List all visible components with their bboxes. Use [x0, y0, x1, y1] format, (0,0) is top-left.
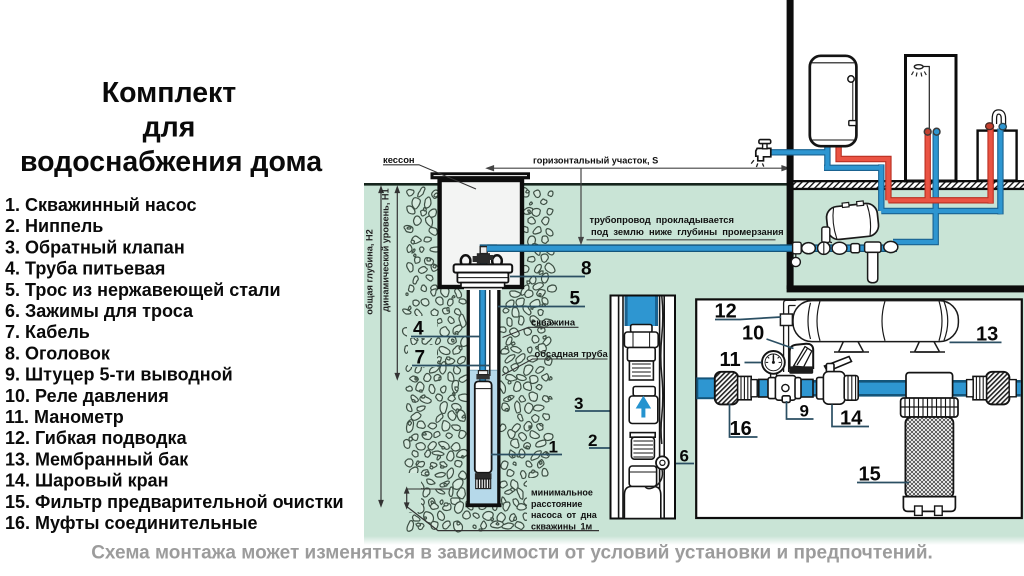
svg-text:2. Ниппель: 2. Ниппель — [5, 216, 103, 236]
svg-text:7: 7 — [415, 348, 426, 369]
svg-text:Комплект: Комплект — [102, 77, 237, 109]
svg-text:общая глубина, Н2: общая глубина, Н2 — [365, 229, 375, 314]
svg-text:9: 9 — [800, 402, 809, 421]
svg-text:16. Муфты соединительные: 16. Муфты соединительные — [5, 513, 258, 533]
svg-text:водоснабжения дома: водоснабжения дома — [20, 146, 323, 178]
svg-text:2: 2 — [588, 431, 597, 450]
svg-text:насоса от дна: насоса от дна — [531, 510, 598, 520]
svg-text:14. Шаровый кран: 14. Шаровый кран — [5, 471, 169, 491]
svg-text:4. Труба питьевая: 4. Труба питьевая — [5, 259, 165, 279]
svg-text:горизонтальный участок, S: горизонтальный участок, S — [533, 156, 658, 166]
svg-text:Схема монтажа может изменяться: Схема монтажа может изменяться в зависим… — [91, 543, 933, 564]
svg-text:12. Гибкая подводка: 12. Гибкая подводка — [5, 428, 188, 448]
svg-text:11. Манометр: 11. Манометр — [5, 407, 124, 427]
svg-text:5: 5 — [570, 289, 581, 310]
svg-text:1: 1 — [549, 438, 558, 457]
svg-text:10: 10 — [742, 323, 764, 345]
svg-text:15. Фильтр предварительной очи: 15. Фильтр предварительной очистки — [5, 492, 344, 512]
svg-text:7. Кабель: 7. Кабель — [5, 322, 90, 342]
svg-text:16: 16 — [730, 418, 752, 440]
svg-text:трубопровод прокладывается: трубопровод прокладывается — [590, 214, 734, 225]
svg-text:обсадная труба: обсадная труба — [535, 348, 609, 359]
svg-text:скважины 1м: скважины 1м — [531, 521, 592, 531]
svg-text:13. Мембранный бак: 13. Мембранный бак — [5, 449, 189, 469]
svg-text:12: 12 — [715, 301, 737, 323]
svg-text:6. Зажимы для троса: 6. Зажимы для троса — [5, 301, 194, 321]
svg-text:динамический уровень, Н1: динамический уровень, Н1 — [381, 188, 391, 311]
svg-text:скважина: скважина — [531, 317, 576, 328]
svg-text:13: 13 — [976, 324, 998, 346]
svg-text:для: для — [143, 112, 196, 144]
svg-text:минимальное: минимальное — [531, 488, 593, 498]
svg-text:8: 8 — [581, 259, 592, 280]
svg-text:15: 15 — [859, 464, 881, 486]
svg-text:расстояние: расстояние — [531, 499, 582, 509]
svg-text:9. Штуцер 5-ти выводной: 9. Штуцер 5-ти выводной — [5, 365, 233, 385]
svg-text:6: 6 — [680, 447, 689, 466]
svg-text:3. Обратный клапан: 3. Обратный клапан — [5, 237, 185, 257]
svg-text:под землю ниже глубины промерз: под землю ниже глубины промерзания — [591, 226, 784, 237]
svg-text:11: 11 — [720, 349, 741, 371]
svg-text:10. Реле давления: 10. Реле давления — [5, 386, 169, 406]
svg-text:кессон: кессон — [383, 154, 415, 165]
svg-text:1. Скважинный насос: 1. Скважинный насос — [5, 195, 197, 215]
svg-text:14: 14 — [840, 408, 863, 430]
svg-text:8. Оголовок: 8. Оголовок — [5, 343, 111, 363]
svg-text:4: 4 — [413, 319, 424, 340]
svg-text:5. Трос из нержавеющей стали: 5. Трос из нержавеющей стали — [5, 280, 281, 300]
svg-text:3: 3 — [574, 394, 583, 413]
